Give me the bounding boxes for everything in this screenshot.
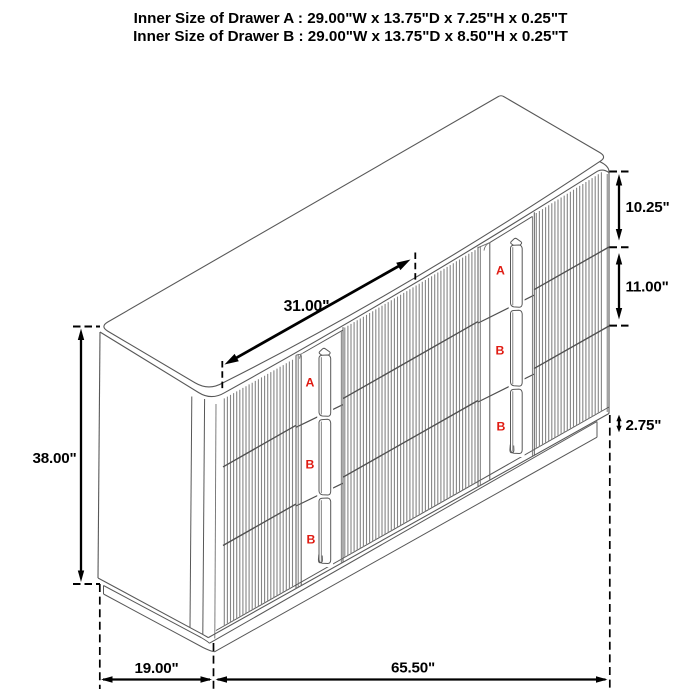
svg-text:Inner Size of Drawer A : 29.00: Inner Size of Drawer A : 29.00"W x 13.75…: [134, 10, 568, 27]
svg-text:31.00": 31.00": [284, 298, 330, 315]
svg-text:10.25": 10.25": [626, 199, 670, 216]
svg-text:A: A: [496, 263, 505, 277]
svg-text:38.00": 38.00": [32, 450, 76, 467]
svg-text:65.50": 65.50": [391, 660, 435, 677]
svg-text:11.00": 11.00": [626, 278, 669, 295]
svg-text:2.75": 2.75": [626, 417, 662, 434]
svg-text:B: B: [497, 419, 506, 433]
svg-text:A: A: [306, 375, 315, 389]
svg-text:B: B: [496, 343, 505, 357]
svg-text:Inner Size of Drawer B : 29.00: Inner Size of Drawer B : 29.00"W x 13.75…: [133, 28, 569, 45]
svg-text:B: B: [306, 457, 315, 471]
svg-text:B: B: [307, 532, 316, 546]
svg-text:19.00": 19.00": [134, 660, 178, 677]
